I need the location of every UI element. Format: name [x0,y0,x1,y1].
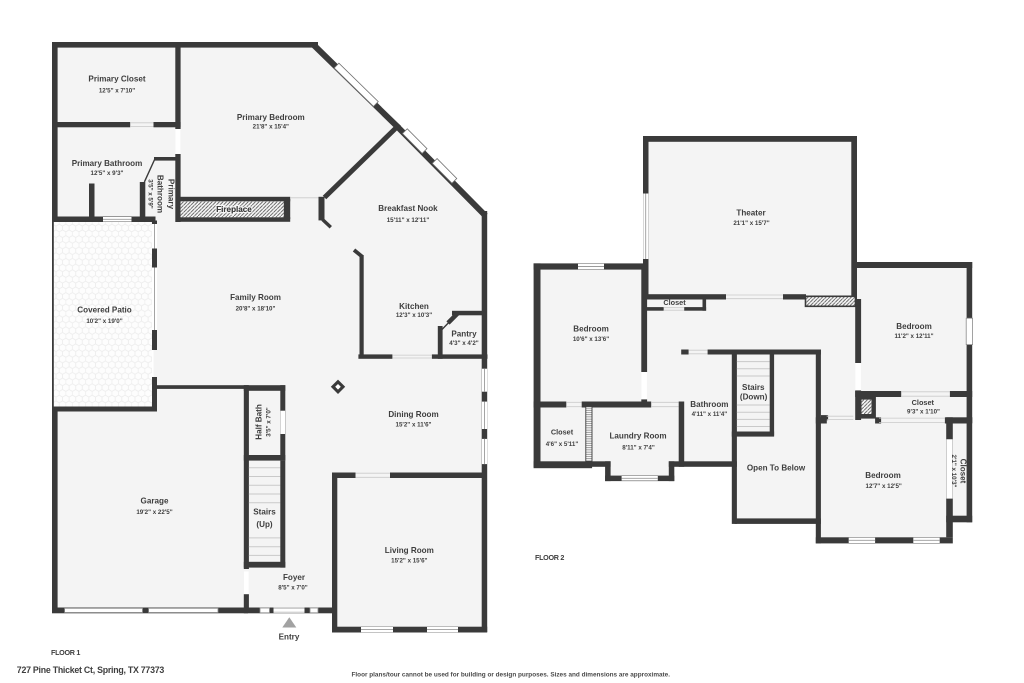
svg-text:21'8" x 15'4": 21'8" x 15'4" [253,124,289,131]
svg-text:Foyer: Foyer [283,573,306,582]
svg-text:Entry: Entry [279,633,300,642]
svg-text:15'2" x 11'6": 15'2" x 11'6" [396,422,432,429]
svg-text:Open To Below: Open To Below [747,464,806,473]
svg-text:Kitchen: Kitchen [399,302,429,311]
svg-text:Stairs: Stairs [253,508,276,517]
svg-text:3'5" x 5'9": 3'5" x 5'9" [146,179,153,209]
svg-text:12'5" x 7'10": 12'5" x 7'10" [99,88,135,95]
svg-text:12'7" x 12'5": 12'7" x 12'5" [866,483,902,490]
svg-text:Bedroom: Bedroom [865,471,901,480]
svg-text:Covered Patio: Covered Patio [77,306,131,315]
svg-text:15'2" x 15'6": 15'2" x 15'6" [391,558,427,565]
svg-text:2'1" x 10'3": 2'1" x 10'3" [950,455,957,488]
svg-text:10'2" x 19'0": 10'2" x 19'0" [86,318,122,325]
svg-text:Half Bath: Half Bath [255,404,264,440]
svg-text:Primary Bedroom: Primary Bedroom [237,113,305,122]
svg-text:4'6" x 5'11": 4'6" x 5'11" [546,441,579,448]
svg-text:Stairs: Stairs [742,383,765,392]
svg-text:20'8" x 18'10": 20'8" x 18'10" [236,306,276,313]
svg-text:Bedroom: Bedroom [573,325,609,334]
svg-text:Bathroom: Bathroom [690,400,728,409]
svg-text:Laundry Room: Laundry Room [609,432,666,441]
svg-text:Living Room: Living Room [385,546,434,555]
svg-text:Bedroom: Bedroom [896,322,932,331]
svg-text:Closet: Closet [551,428,574,437]
svg-text:FLOOR 1: FLOOR 1 [51,648,80,657]
svg-text:12'3" x 10'3": 12'3" x 10'3" [396,312,432,319]
svg-text:Primary Closet: Primary Closet [88,75,145,84]
svg-text:Closet: Closet [959,459,968,484]
svg-text:4'3" x 4'2": 4'3" x 4'2" [449,340,479,347]
svg-text:11'2" x 12'11": 11'2" x 12'11" [894,333,933,340]
svg-text:12'5" x 9'3": 12'5" x 9'3" [91,170,124,177]
svg-text:3'5" x 7'0": 3'5" x 7'0" [266,407,273,437]
svg-text:Dining Room: Dining Room [388,410,438,419]
svg-text:Primary: Primary [166,179,175,210]
svg-text:9'3" x 1'10": 9'3" x 1'10" [907,409,940,416]
svg-text:727 Pine Thicket Ct, Spring, T: 727 Pine Thicket Ct, Spring, TX 77373 [17,665,165,675]
svg-text:21'1" x 15'7": 21'1" x 15'7" [733,220,769,227]
svg-text:Closet: Closet [663,298,686,307]
svg-text:Theater: Theater [736,209,766,218]
svg-text:Family Room: Family Room [230,293,281,302]
svg-text:10'6" x 13'6": 10'6" x 13'6" [573,336,609,343]
svg-text:4'11" x 11'4": 4'11" x 11'4" [692,411,728,418]
svg-text:15'11" x 12'11": 15'11" x 12'11" [387,217,430,224]
svg-text:(Down): (Down) [740,393,768,402]
svg-text:Pantry: Pantry [451,330,477,339]
svg-text:Floor plans/tour cannot be use: Floor plans/tour cannot be used for buil… [352,672,671,679]
svg-text:Bathroom: Bathroom [155,175,164,213]
svg-text:Primary Bathroom: Primary Bathroom [72,159,143,168]
svg-text:8'11" x 7'4": 8'11" x 7'4" [622,444,655,451]
svg-text:Garage: Garage [141,497,169,506]
svg-text:FLOOR 2: FLOOR 2 [535,553,564,562]
svg-text:(Up): (Up) [256,520,272,529]
svg-text:Closet: Closet [912,398,935,407]
svg-text:8'5" x 7'0": 8'5" x 7'0" [278,585,308,592]
svg-text:Fireplace: Fireplace [216,205,252,214]
svg-text:Breakfast Nook: Breakfast Nook [378,204,438,213]
svg-text:19'2" x 22'5": 19'2" x 22'5" [136,509,172,516]
